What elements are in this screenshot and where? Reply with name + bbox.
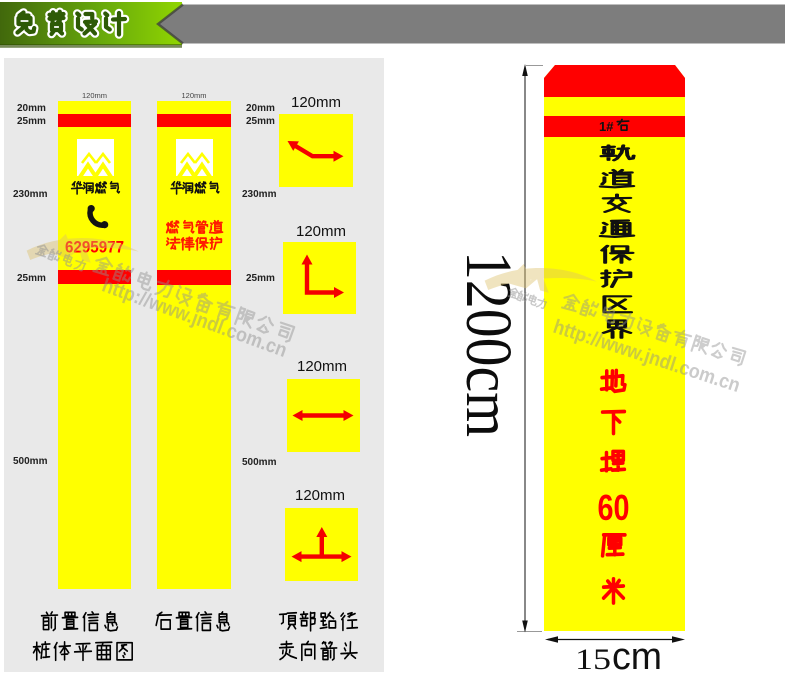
svg-text:120mm: 120mm [82, 91, 107, 100]
svg-text:120mm: 120mm [181, 91, 206, 100]
svg-text:25mm: 25mm [17, 273, 46, 284]
svg-text:120mm: 120mm [297, 358, 347, 375]
svg-text:15: 15 [575, 643, 611, 676]
svg-text:20mm: 20mm [246, 103, 275, 114]
svg-text:60: 60 [598, 487, 630, 528]
svg-text:1#: 1# [599, 119, 614, 134]
svg-text:120mm: 120mm [295, 487, 345, 504]
svg-text:25mm: 25mm [246, 273, 275, 284]
svg-text:25mm: 25mm [17, 116, 46, 127]
svg-text:500mm: 500mm [13, 456, 48, 467]
svg-text:25mm: 25mm [246, 116, 275, 127]
svg-text:230mm: 230mm [242, 189, 277, 200]
svg-text:20mm: 20mm [17, 103, 46, 114]
svg-text:500mm: 500mm [242, 457, 277, 468]
svg-text:230mm: 230mm [13, 189, 48, 200]
svg-text:cm: cm [612, 636, 662, 678]
svg-text:120mm: 120mm [291, 94, 341, 111]
svg-text:120mm: 120mm [296, 223, 346, 240]
